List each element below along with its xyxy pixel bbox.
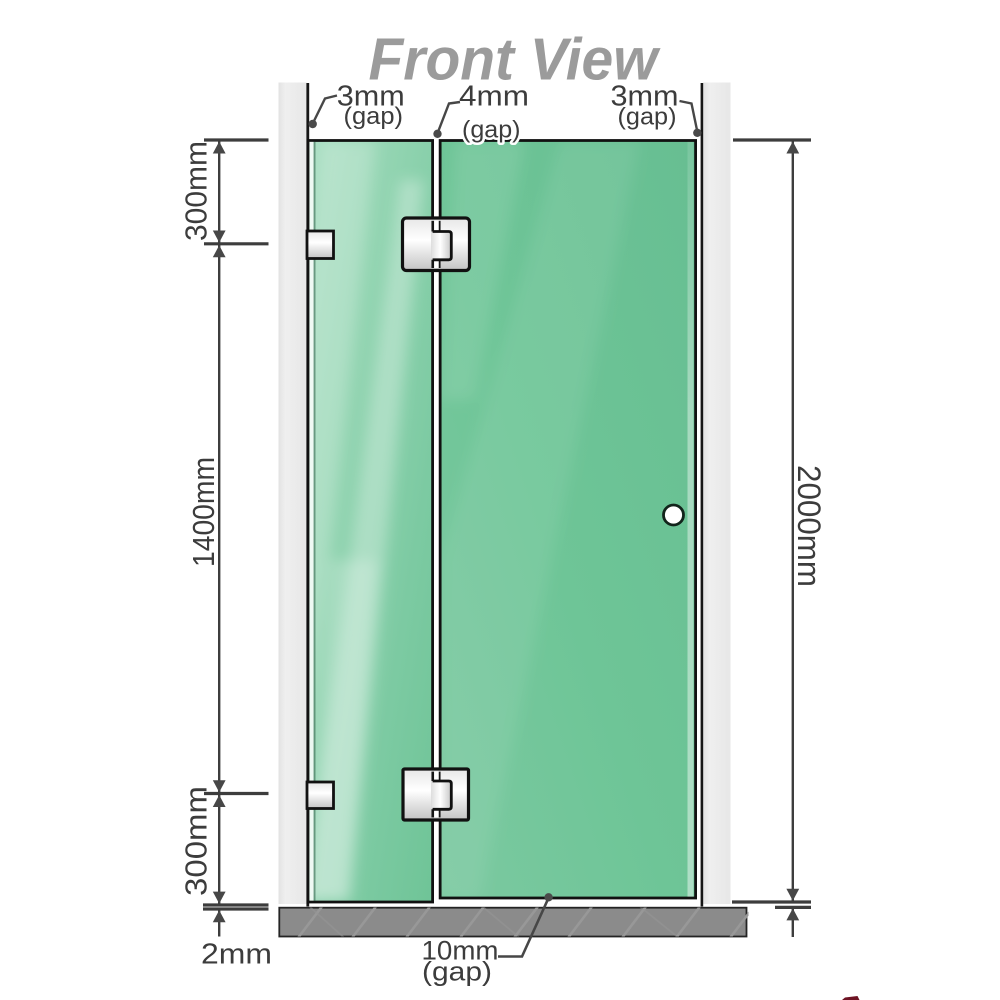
svg-text:2000mm: 2000mm <box>791 465 827 587</box>
svg-text:(gap): (gap) <box>422 957 492 987</box>
svg-text:2mm: 2mm <box>201 939 272 971</box>
svg-text:300mm: 300mm <box>179 141 214 241</box>
svg-text:(gap): (gap) <box>618 104 677 131</box>
svg-text:(gap): (gap) <box>462 117 521 144</box>
svg-text:(gap): (gap) <box>344 103 404 130</box>
svg-text:300mm: 300mm <box>179 786 214 896</box>
svg-text:4mm: 4mm <box>459 81 529 113</box>
svg-text:1400mm: 1400mm <box>186 457 221 567</box>
